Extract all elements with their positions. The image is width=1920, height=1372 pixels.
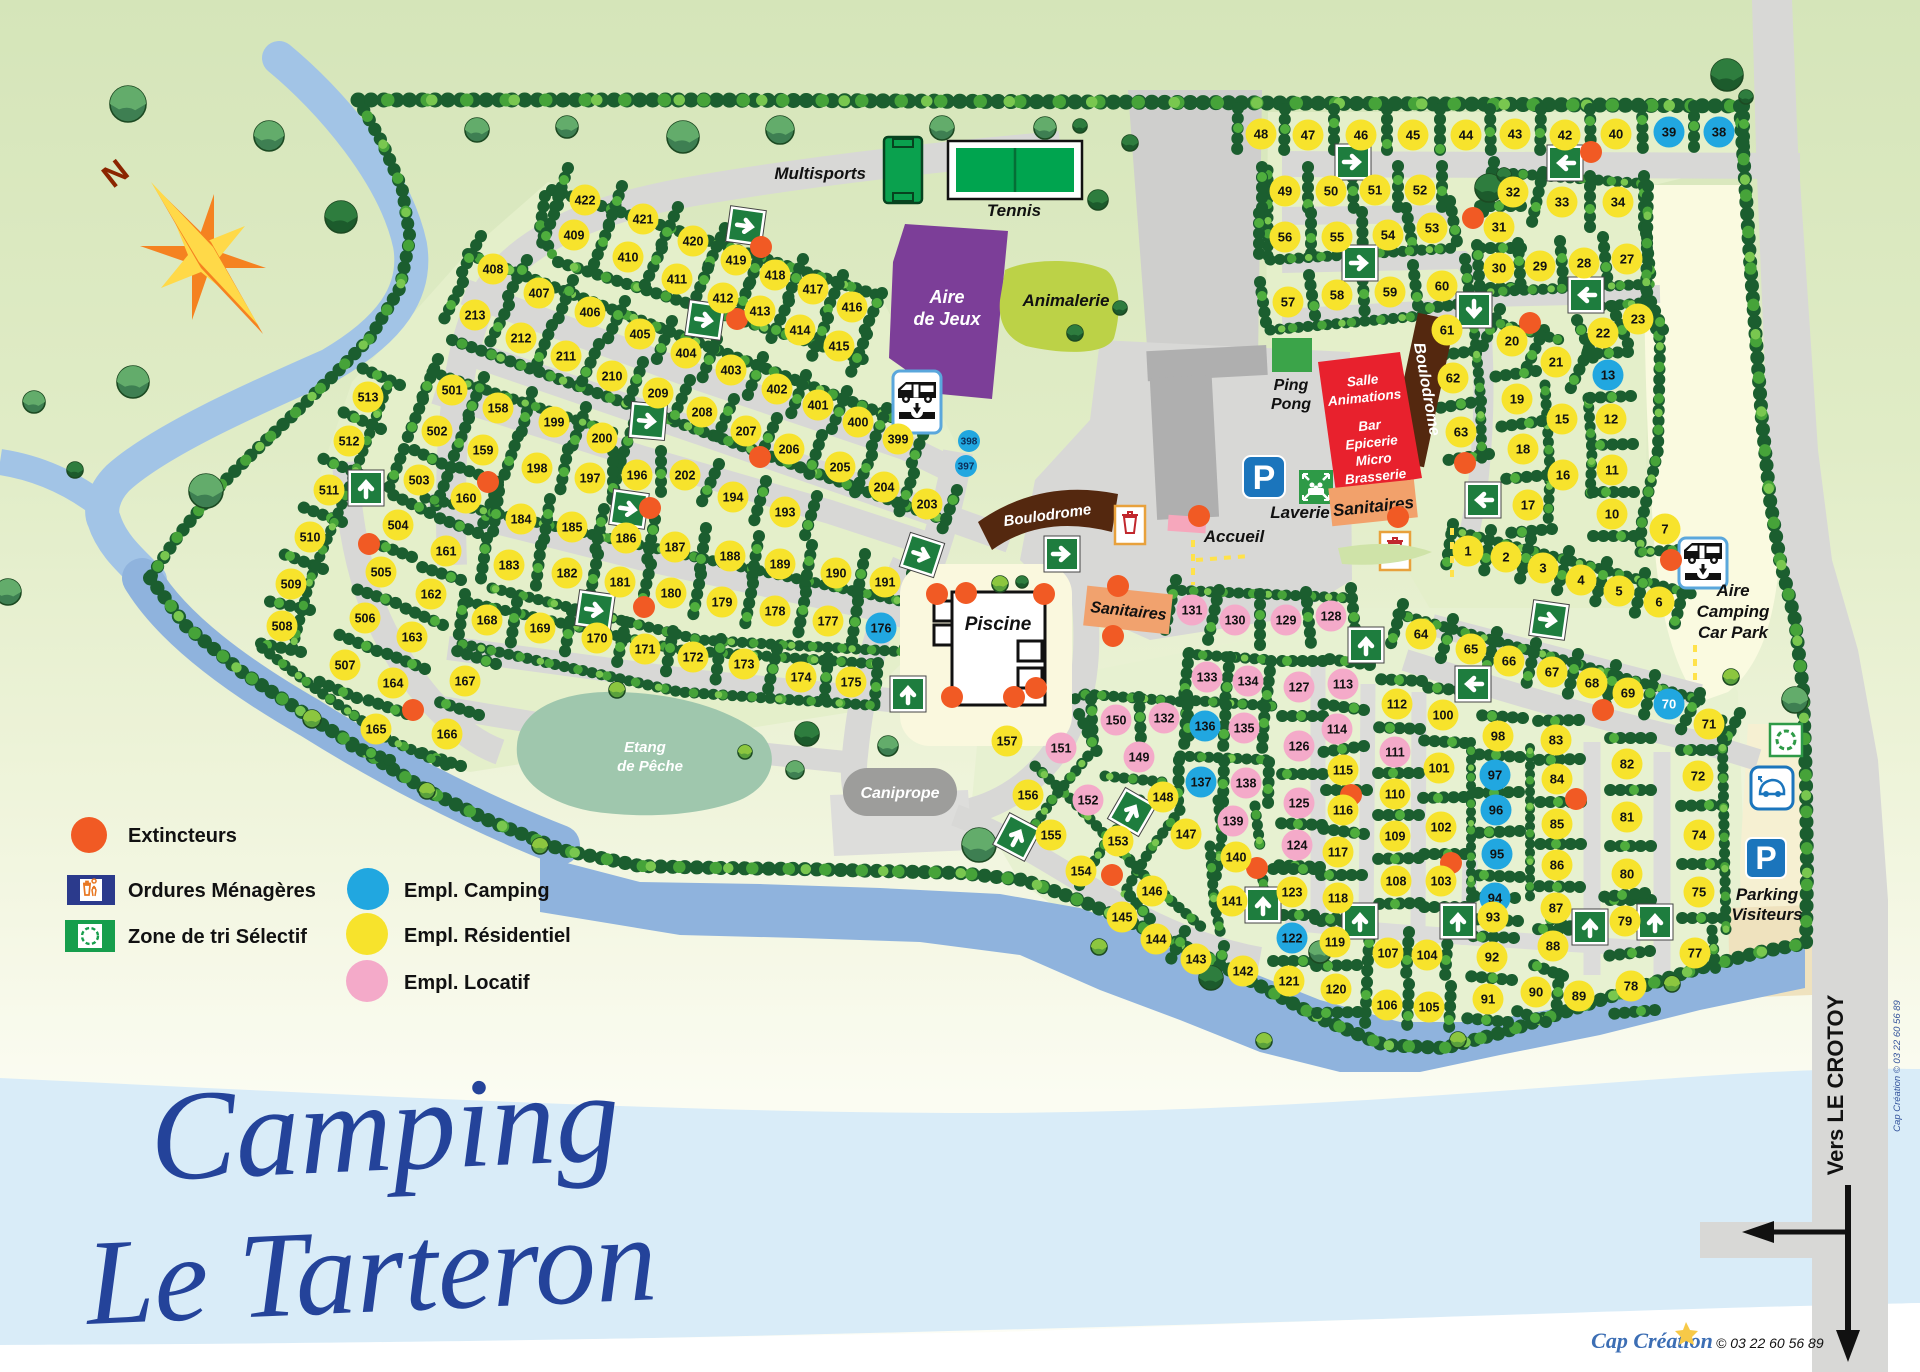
svg-text:399: 399 [888,433,909,447]
svg-text:33: 33 [1555,195,1569,210]
svg-text:212: 212 [511,332,532,346]
svg-text:4: 4 [1577,573,1585,588]
svg-text:75: 75 [1692,885,1706,900]
svg-text:Multisports: Multisports [774,164,866,183]
svg-text:181: 181 [610,576,631,590]
svg-text:57: 57 [1281,295,1295,310]
svg-text:84: 84 [1550,772,1565,787]
svg-text:54: 54 [1381,228,1396,243]
svg-text:45: 45 [1406,128,1420,143]
svg-text:Empl. Camping: Empl. Camping [404,880,550,902]
svg-text:Camping: Camping [1697,602,1770,621]
svg-text:166: 166 [437,728,458,742]
svg-text:409: 409 [564,229,585,243]
svg-text:205: 205 [830,461,851,475]
svg-text:169: 169 [530,622,551,636]
svg-text:134: 134 [1238,675,1259,689]
svg-text:422: 422 [575,194,596,208]
svg-text:Aire: Aire [1715,581,1749,600]
svg-text:78: 78 [1624,979,1638,994]
svg-text:20: 20 [1505,334,1519,349]
svg-text:19: 19 [1510,392,1524,407]
svg-text:209: 209 [648,387,669,401]
svg-text:80: 80 [1620,867,1634,882]
svg-text:Aire: Aire [928,287,964,307]
svg-text:135: 135 [1234,722,1255,736]
svg-text:21: 21 [1549,355,1563,370]
svg-text:156: 156 [1018,789,1039,803]
svg-text:154: 154 [1071,865,1092,879]
svg-text:505: 505 [371,566,392,580]
svg-text:44: 44 [1459,128,1474,143]
svg-text:65: 65 [1464,642,1478,657]
svg-text:207: 207 [736,425,757,439]
svg-text:183: 183 [499,559,520,573]
svg-text:31: 31 [1492,220,1506,235]
svg-text:511: 511 [319,484,339,498]
svg-text:40: 40 [1609,127,1623,142]
svg-text:101: 101 [1429,762,1450,776]
svg-text:415: 415 [829,340,850,354]
svg-text:30: 30 [1492,261,1506,276]
svg-text:413: 413 [750,305,771,319]
svg-text:407: 407 [529,287,550,301]
svg-text:6: 6 [1655,595,1662,610]
svg-text:Etang: Etang [624,739,666,756]
svg-text:184: 184 [511,513,532,527]
svg-text:Zone de tri Sélectif: Zone de tri Sélectif [128,926,307,948]
svg-text:66: 66 [1502,654,1516,669]
svg-text:162: 162 [421,588,442,602]
svg-text:53: 53 [1425,221,1439,236]
svg-text:414: 414 [790,324,811,338]
svg-text:29: 29 [1533,259,1547,274]
svg-text:91: 91 [1481,992,1495,1007]
svg-text:69: 69 [1621,686,1635,701]
svg-text:71: 71 [1702,717,1716,732]
svg-text:92: 92 [1485,950,1499,965]
svg-text:206: 206 [779,443,800,457]
svg-text:164: 164 [383,677,404,691]
svg-text:179: 179 [712,596,733,610]
svg-text:509: 509 [281,578,302,592]
svg-text:503: 503 [409,474,430,488]
svg-text:122: 122 [1282,932,1303,946]
svg-text:412: 412 [713,292,734,306]
svg-text:Animalerie: Animalerie [1022,291,1110,310]
svg-text:34: 34 [1611,195,1626,210]
svg-text:Tennis: Tennis [987,201,1041,220]
svg-text:158: 158 [488,402,509,416]
svg-text:117: 117 [1328,846,1348,860]
svg-text:188: 188 [720,550,741,564]
svg-text:139: 139 [1223,815,1244,829]
svg-text:153: 153 [1108,835,1129,849]
svg-text:60: 60 [1435,279,1449,294]
svg-text:187: 187 [665,541,686,555]
svg-text:105: 105 [1419,1001,1440,1015]
svg-text:108: 108 [1386,875,1407,889]
svg-text:408: 408 [483,263,504,277]
svg-text:138: 138 [1236,777,1257,791]
svg-text:P: P [1253,459,1276,497]
svg-text:142: 142 [1233,965,1254,979]
svg-text:85: 85 [1550,817,1564,832]
svg-text:123: 123 [1282,886,1303,900]
svg-text:98: 98 [1491,729,1505,744]
svg-text:402: 402 [767,383,788,397]
svg-text:198: 198 [527,462,548,476]
svg-text:81: 81 [1620,810,1634,825]
svg-text:136: 136 [1195,720,1216,734]
svg-text:197: 197 [580,472,601,486]
svg-text:510: 510 [300,531,321,545]
svg-text:185: 185 [562,521,583,535]
svg-text:63: 63 [1454,425,1468,440]
svg-text:404: 404 [676,347,697,361]
svg-text:131: 131 [1182,604,1203,618]
svg-text:51: 51 [1368,183,1382,198]
svg-text:Empl. Locatif: Empl. Locatif [404,972,530,994]
svg-text:157: 157 [997,735,1018,749]
svg-text:176: 176 [871,622,892,636]
svg-text:419: 419 [726,254,747,268]
svg-text:103: 103 [1431,875,1452,889]
svg-text:83: 83 [1549,733,1563,748]
svg-text:137: 137 [1191,776,1212,790]
svg-text:55: 55 [1330,230,1344,245]
svg-text:171: 171 [635,643,656,657]
svg-text:405: 405 [630,328,651,342]
svg-text:170: 170 [587,632,608,646]
svg-text:de Pêche: de Pêche [617,758,683,775]
svg-text:110: 110 [1385,788,1405,802]
svg-text:96: 96 [1489,803,1503,818]
svg-text:28: 28 [1577,256,1591,271]
svg-text:Bar: Bar [1358,417,1383,434]
svg-text:199: 199 [544,416,565,430]
svg-text:70: 70 [1662,697,1676,712]
svg-text:120: 120 [1326,983,1347,997]
svg-text:160: 160 [456,492,477,506]
svg-text:128: 128 [1321,610,1342,624]
svg-text:39: 39 [1662,125,1676,140]
svg-text:186: 186 [616,532,637,546]
svg-text:Parking: Parking [1736,885,1799,904]
svg-text:125: 125 [1289,797,1310,811]
svg-text:58: 58 [1330,288,1344,303]
svg-text:420: 420 [683,235,704,249]
svg-text:82: 82 [1620,757,1634,772]
svg-text:Camping: Camping [147,1046,622,1208]
svg-text:12: 12 [1604,412,1618,427]
svg-text:190: 190 [826,567,847,581]
svg-text:77: 77 [1688,946,1702,961]
svg-text:Empl. Résidentiel: Empl. Résidentiel [404,925,571,947]
svg-text:47: 47 [1301,128,1315,143]
svg-text:43: 43 [1508,127,1522,142]
svg-text:23: 23 [1631,312,1645,327]
svg-text:Vers LE CROTOY: Vers LE CROTOY [1823,994,1848,1175]
svg-text:13: 13 [1601,368,1615,383]
svg-text:127: 127 [1289,681,1310,695]
svg-text:507: 507 [335,659,356,673]
svg-text:121: 121 [1279,975,1300,989]
svg-text:Ordures Ménagères: Ordures Ménagères [128,880,316,902]
svg-text:104: 104 [1417,949,1438,963]
svg-text:174: 174 [791,671,812,685]
svg-text:113: 113 [1333,678,1353,692]
svg-text:86: 86 [1550,858,1564,873]
svg-text:150: 150 [1106,714,1127,728]
svg-text:144: 144 [1146,933,1167,947]
svg-text:159: 159 [473,444,494,458]
svg-text:114: 114 [1327,723,1347,737]
svg-text:119: 119 [1325,936,1345,950]
svg-text:173: 173 [734,658,755,672]
svg-text:62: 62 [1446,371,1460,386]
svg-text:10: 10 [1605,507,1619,522]
svg-text:Pong: Pong [1271,396,1311,413]
svg-text:42: 42 [1558,128,1572,143]
svg-text:Ping: Ping [1274,377,1309,394]
svg-text:79: 79 [1618,914,1632,929]
svg-text:11: 11 [1605,463,1619,478]
svg-text:182: 182 [557,567,578,581]
svg-text:129: 129 [1276,614,1297,628]
svg-text:Accueil: Accueil [1203,527,1266,546]
svg-text:68: 68 [1585,676,1599,691]
svg-text:1: 1 [1464,544,1471,559]
svg-text:124: 124 [1287,839,1308,853]
svg-text:132: 132 [1154,712,1175,726]
svg-text:193: 193 [775,506,796,520]
svg-text:16: 16 [1556,468,1570,483]
svg-text:152: 152 [1078,794,1099,808]
svg-text:56: 56 [1278,230,1292,245]
svg-text:109: 109 [1385,830,1406,844]
svg-text:64: 64 [1414,627,1429,642]
svg-text:Visiteurs: Visiteurs [1731,905,1802,924]
svg-text:140: 140 [1226,851,1247,865]
svg-text:151: 151 [1051,742,1072,756]
svg-text:421: 421 [633,213,654,227]
svg-text:Car Park: Car Park [1698,623,1769,642]
svg-text:168: 168 [477,614,498,628]
svg-text:204: 204 [874,481,895,495]
svg-text:50: 50 [1324,184,1338,199]
svg-text:210: 210 [602,370,623,384]
svg-text:Cap Création © 03 22 60 56 89: Cap Création © 03 22 60 56 89 [1892,999,1903,1131]
svg-text:112: 112 [1387,698,1407,712]
svg-text:48: 48 [1254,127,1268,142]
svg-text:178: 178 [765,605,786,619]
svg-text:418: 418 [765,269,786,283]
svg-text:147: 147 [1176,828,1197,842]
svg-text:126: 126 [1289,740,1310,754]
svg-text:406: 406 [580,306,601,320]
svg-text:59: 59 [1383,285,1397,300]
svg-text:49: 49 [1278,184,1292,199]
svg-text:175: 175 [841,676,862,690]
svg-text:52: 52 [1413,183,1427,198]
svg-text:74: 74 [1692,828,1707,843]
svg-text:Piscine: Piscine [965,614,1032,635]
svg-text:93: 93 [1486,910,1500,925]
svg-text:200: 200 [592,432,613,446]
svg-text:146: 146 [1142,885,1163,899]
svg-text:508: 508 [272,620,293,634]
svg-text:202: 202 [675,469,696,483]
svg-text:189: 189 [770,558,791,572]
svg-text:67: 67 [1545,665,1559,680]
svg-text:502: 502 [427,425,448,439]
svg-text:148: 148 [1153,791,1174,805]
svg-text:P: P [1755,840,1776,876]
svg-text:111: 111 [1385,746,1405,760]
svg-text:61: 61 [1440,323,1454,338]
svg-text:89: 89 [1572,989,1586,1004]
svg-text:417: 417 [803,283,824,297]
svg-text:506: 506 [355,612,376,626]
svg-text:Laverie: Laverie [1270,503,1330,522]
svg-text:155: 155 [1041,829,1062,843]
svg-text:133: 133 [1197,671,1218,685]
svg-text:90: 90 [1529,985,1543,1000]
svg-text:7: 7 [1661,522,1668,537]
svg-text:203: 203 [917,498,938,512]
svg-text:410: 410 [618,251,639,265]
svg-text:401: 401 [808,399,829,413]
svg-text:161: 161 [436,545,457,559]
svg-text:145: 145 [1112,911,1133,925]
svg-text:116: 116 [1333,804,1353,818]
svg-text:211: 211 [556,350,576,364]
svg-text:107: 107 [1378,947,1399,961]
svg-text:196: 196 [627,469,648,483]
svg-text:513: 513 [358,391,379,405]
svg-text:398: 398 [961,437,978,448]
svg-text:416: 416 [842,301,863,315]
svg-text:403: 403 [721,364,742,378]
svg-text:143: 143 [1186,953,1207,967]
svg-text:100: 100 [1433,709,1454,723]
svg-text:411: 411 [667,273,687,287]
svg-text:213: 213 [465,309,486,323]
svg-text:165: 165 [366,723,387,737]
svg-text:38: 38 [1712,125,1726,140]
svg-text:130: 130 [1225,614,1246,628]
svg-text:118: 118 [1328,892,1348,906]
svg-text:Extincteurs: Extincteurs [128,825,237,847]
svg-text:2: 2 [1502,550,1509,565]
svg-text:504: 504 [388,519,409,533]
svg-text:172: 172 [683,651,704,665]
svg-text:3: 3 [1539,561,1546,576]
svg-text:191: 191 [875,576,896,590]
svg-text:397: 397 [958,462,975,473]
svg-text:88: 88 [1546,939,1560,954]
svg-text:72: 72 [1691,769,1705,784]
svg-text:17: 17 [1521,498,1535,513]
svg-text:208: 208 [692,406,713,420]
svg-text:Caniprope: Caniprope [860,785,939,802]
svg-text:de Jeux: de Jeux [913,309,981,329]
svg-text:512: 512 [339,435,360,449]
svg-text:115: 115 [1333,764,1353,778]
svg-text:97: 97 [1488,768,1502,783]
svg-text:15: 15 [1555,412,1569,427]
svg-text:95: 95 [1490,847,1504,862]
svg-text:400: 400 [848,416,869,430]
svg-text:102: 102 [1431,821,1452,835]
svg-text:141: 141 [1222,895,1243,909]
svg-text:106: 106 [1377,999,1398,1013]
svg-text:22: 22 [1596,326,1610,341]
svg-text:Le Tarteron: Le Tarteron [81,1191,659,1351]
svg-text:5: 5 [1615,584,1622,599]
svg-text:32: 32 [1506,185,1520,200]
svg-text:27: 27 [1620,252,1634,267]
svg-text:46: 46 [1354,128,1368,143]
svg-text:177: 177 [818,615,839,629]
svg-text:149: 149 [1129,751,1150,765]
svg-text:501: 501 [442,384,463,398]
svg-text:18: 18 [1516,442,1530,457]
svg-text:194: 194 [723,491,744,505]
svg-text:180: 180 [661,587,682,601]
svg-text:© 03 22 60 56 89: © 03 22 60 56 89 [1716,1335,1824,1351]
svg-text:163: 163 [402,631,423,645]
svg-text:167: 167 [455,675,476,689]
svg-text:87: 87 [1549,901,1563,916]
